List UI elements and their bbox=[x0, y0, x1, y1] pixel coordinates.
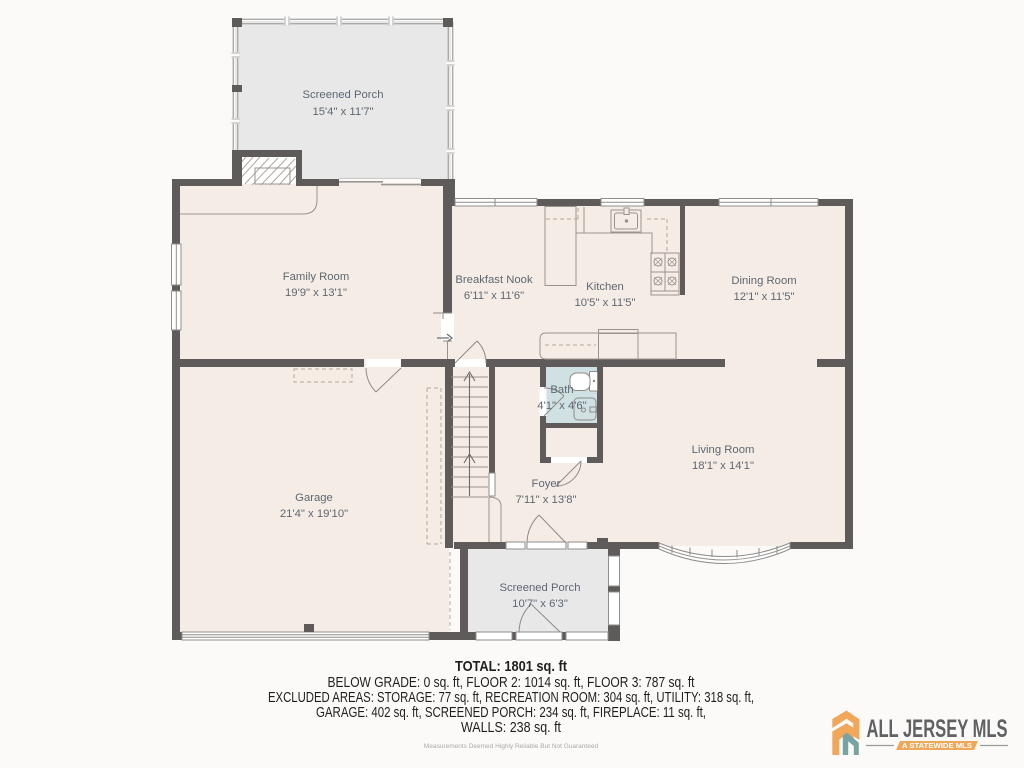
svg-text:Kitchen: Kitchen bbox=[586, 281, 624, 293]
svg-text:21'4" x 19'10": 21'4" x 19'10" bbox=[280, 508, 348, 520]
svg-text:Bath: Bath bbox=[550, 384, 573, 396]
svg-text:BELOW GRADE: 0 sq. ft, FLOOR 2: BELOW GRADE: 0 sq. ft, FLOOR 2: 1014 sq.… bbox=[328, 675, 695, 691]
svg-text:Breakfast Nook: Breakfast Nook bbox=[455, 274, 533, 286]
svg-text:Living Room: Living Room bbox=[692, 444, 755, 456]
svg-text:WALLS: 238 sq. ft: WALLS: 238 sq. ft bbox=[461, 720, 561, 736]
svg-text:10'7" x 6'3": 10'7" x 6'3" bbox=[512, 598, 568, 610]
svg-text:4'1" x 4'6": 4'1" x 4'6" bbox=[537, 400, 586, 412]
svg-text:7'11" x 13'8": 7'11" x 13'8" bbox=[515, 494, 576, 506]
svg-text:Foyer: Foyer bbox=[532, 478, 561, 490]
svg-text:Family Room: Family Room bbox=[283, 271, 350, 283]
svg-text:Garage: Garage bbox=[295, 492, 333, 504]
svg-text:Screened Porch: Screened Porch bbox=[302, 89, 383, 101]
svg-text:15'4" x 11'7": 15'4" x 11'7" bbox=[312, 106, 373, 118]
svg-text:19'9" x 13'1": 19'9" x 13'1" bbox=[285, 287, 347, 299]
svg-text:EXCLUDED AREAS: STORAGE: 77 sq: EXCLUDED AREAS: STORAGE: 77 sq. ft, RECR… bbox=[268, 690, 754, 706]
svg-text:6'11" x 11'6": 6'11" x 11'6" bbox=[464, 290, 524, 302]
svg-text:18'1" x 14'1": 18'1" x 14'1" bbox=[692, 460, 754, 472]
svg-text:12'1" x 11'5": 12'1" x 11'5" bbox=[733, 291, 794, 303]
svg-text:A STATEWIDE MLS: A STATEWIDE MLS bbox=[902, 743, 972, 750]
svg-text:Screened Porch: Screened Porch bbox=[499, 582, 580, 594]
svg-text:GARAGE: 402 sq. ft, SCREENED P: GARAGE: 402 sq. ft, SCREENED PORCH: 234 … bbox=[316, 705, 706, 721]
svg-text:Dining Room: Dining Room bbox=[731, 275, 796, 287]
svg-text:10'5" x 11'5": 10'5" x 11'5" bbox=[574, 297, 635, 309]
svg-text:ALL JERSEY MLS: ALL JERSEY MLS bbox=[867, 715, 1008, 743]
svg-text:Measurements Deemed Highly Rel: Measurements Deemed Highly Reliable But … bbox=[424, 743, 599, 750]
svg-text:TOTAL: 1801 sq. ft: TOTAL: 1801 sq. ft bbox=[455, 658, 567, 675]
